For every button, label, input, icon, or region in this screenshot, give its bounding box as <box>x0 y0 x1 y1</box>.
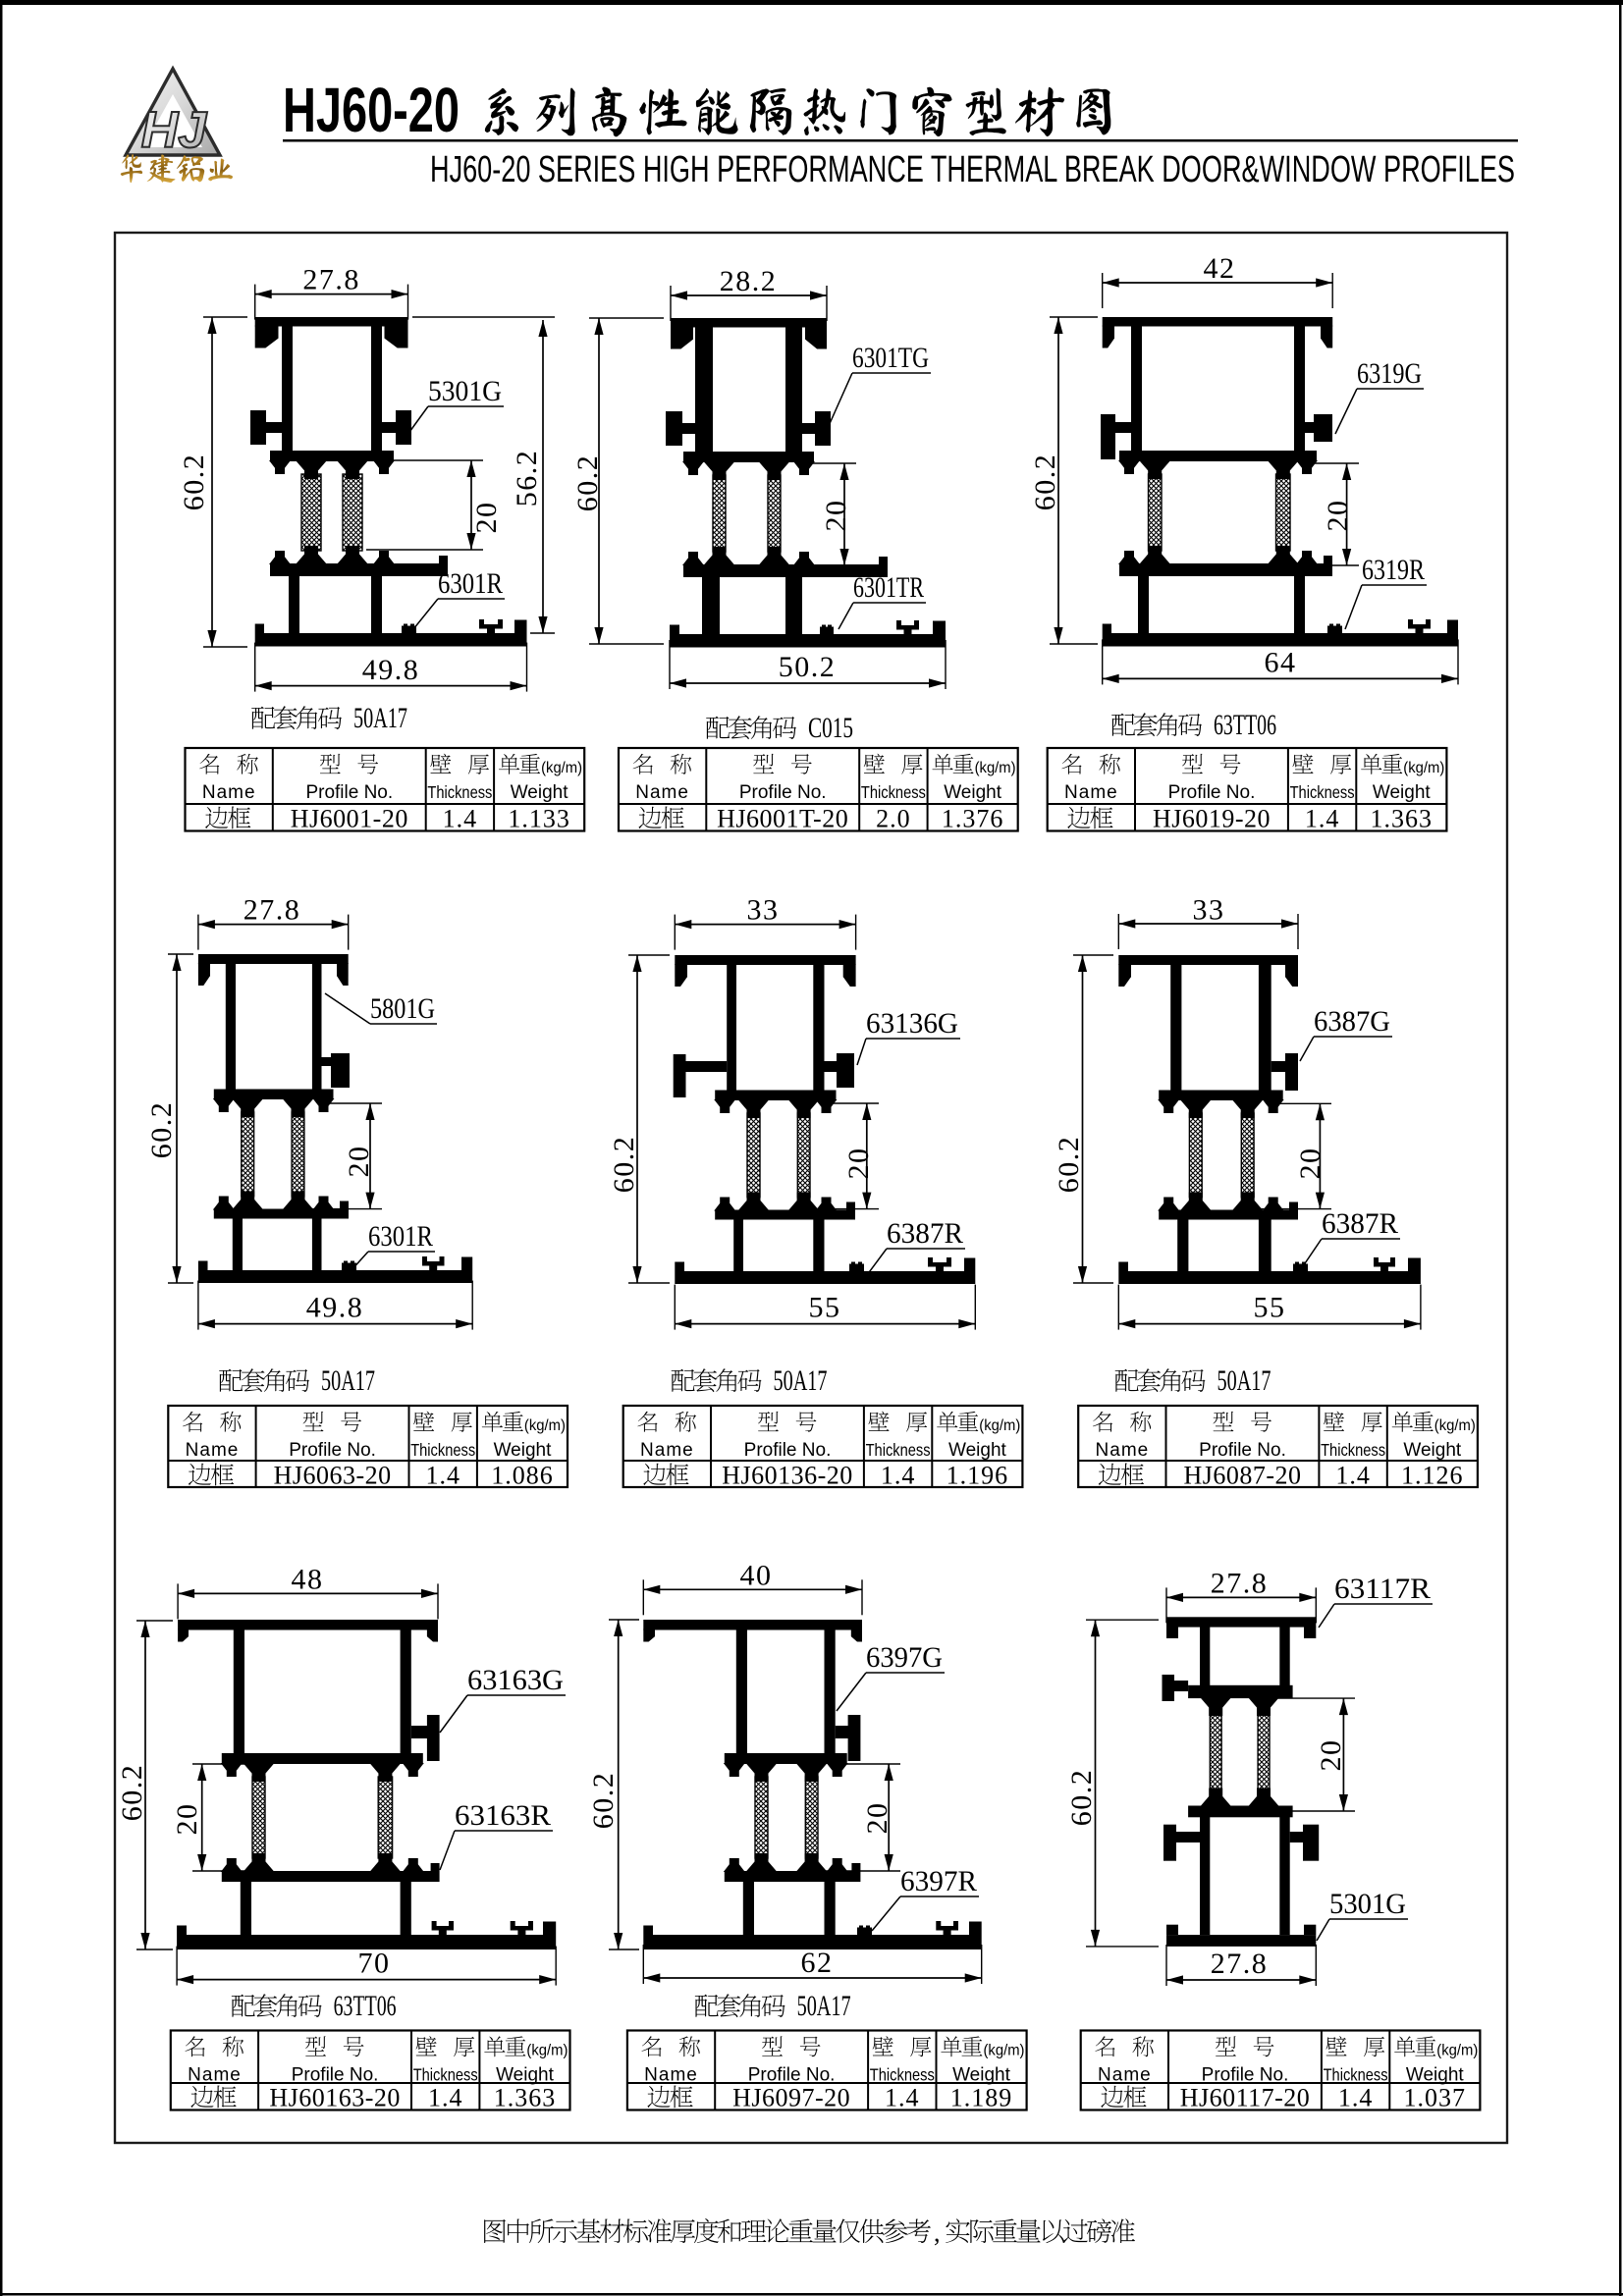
svg-text:HJ6001-20: HJ6001-20 <box>291 805 408 833</box>
svg-text:Weight: Weight <box>944 782 1002 803</box>
svg-text:Name: Name <box>1096 1440 1150 1461</box>
svg-text:50A17: 50A17 <box>774 1364 828 1397</box>
svg-text:(kg/m): (kg/m) <box>541 760 582 776</box>
svg-text:Thickness: Thickness <box>870 2065 935 2085</box>
svg-text:6301TR: 6301TR <box>853 571 924 604</box>
svg-text:55: 55 <box>1254 1292 1286 1324</box>
svg-text:Thickness: Thickness <box>1290 782 1355 802</box>
svg-text:HJ6087-20: HJ6087-20 <box>1183 1462 1301 1490</box>
svg-text:27.8: 27.8 <box>1211 1948 1269 1980</box>
svg-text:5301G: 5301G <box>428 375 502 407</box>
svg-text:20: 20 <box>861 1802 893 1835</box>
svg-text:63TT06: 63TT06 <box>334 1990 397 2022</box>
svg-text:Name: Name <box>635 782 689 803</box>
svg-text:5301G: 5301G <box>1329 1888 1406 1920</box>
svg-text:62: 62 <box>801 1947 834 1979</box>
svg-text:6387R: 6387R <box>887 1217 963 1250</box>
svg-text:1.4: 1.4 <box>428 2084 463 2112</box>
svg-text:60.2: 60.2 <box>587 1772 620 1830</box>
svg-text:1.4: 1.4 <box>1338 2084 1374 2112</box>
svg-text:1.133: 1.133 <box>508 805 570 833</box>
svg-text:C015: C015 <box>808 712 853 744</box>
svg-text:Name: Name <box>1064 782 1118 803</box>
svg-text:1.126: 1.126 <box>1401 1462 1464 1490</box>
svg-text:6301TG: 6301TG <box>852 342 929 374</box>
svg-text:Name: Name <box>186 1440 240 1461</box>
svg-text:49.8: 49.8 <box>306 1292 364 1324</box>
svg-text:Thickness: Thickness <box>866 1440 931 1460</box>
svg-text:27.8: 27.8 <box>1211 1567 1269 1599</box>
svg-text:1.037: 1.037 <box>1404 2084 1467 2112</box>
svg-text:Name: Name <box>202 782 256 803</box>
svg-text:60.2: 60.2 <box>571 454 604 512</box>
svg-text:Weight: Weight <box>948 1440 1007 1461</box>
svg-text:Weight: Weight <box>1373 782 1432 803</box>
svg-text:6387R: 6387R <box>1322 1207 1398 1240</box>
svg-text:20: 20 <box>343 1146 375 1178</box>
svg-text:70: 70 <box>358 1948 391 1980</box>
svg-text:1.4: 1.4 <box>1335 1462 1371 1490</box>
svg-text:63TT06: 63TT06 <box>1214 709 1276 741</box>
svg-text:20: 20 <box>842 1148 875 1180</box>
svg-text:27.8: 27.8 <box>243 894 301 927</box>
svg-text:Thickness: Thickness <box>1321 1440 1385 1460</box>
svg-text:20: 20 <box>820 500 852 532</box>
svg-text:1.4: 1.4 <box>443 805 478 833</box>
svg-text:20: 20 <box>1322 500 1354 532</box>
svg-text:Profile No.: Profile No. <box>744 1440 832 1461</box>
svg-text:Thickness: Thickness <box>1324 2065 1388 2085</box>
svg-text:6301R: 6301R <box>368 1220 433 1253</box>
svg-text:60.2: 60.2 <box>145 1101 178 1159</box>
svg-text:1.4: 1.4 <box>881 1462 916 1490</box>
svg-text:(kg/m): (kg/m) <box>984 2043 1025 2059</box>
svg-text:Name: Name <box>188 2065 242 2086</box>
svg-text:60.2: 60.2 <box>1029 454 1061 511</box>
svg-text:HJ6097-20: HJ6097-20 <box>732 2084 850 2112</box>
svg-text:50A17: 50A17 <box>1217 1364 1271 1397</box>
svg-text:60.2: 60.2 <box>1053 1136 1085 1194</box>
svg-text:6387G: 6387G <box>1314 1005 1390 1038</box>
svg-text:HJ60163-20: HJ60163-20 <box>269 2084 401 2112</box>
svg-text:48: 48 <box>292 1563 324 1595</box>
svg-text:64: 64 <box>1265 646 1297 678</box>
svg-text:HJ60136-20: HJ60136-20 <box>722 1462 853 1490</box>
svg-text:Profile No.: Profile No. <box>1168 782 1256 803</box>
svg-text:HJ: HJ <box>141 102 208 159</box>
svg-text:Profile No.: Profile No. <box>739 782 827 803</box>
svg-text:33: 33 <box>747 894 780 927</box>
svg-text:6301R: 6301R <box>438 567 503 600</box>
svg-text:1.189: 1.189 <box>950 2084 1013 2112</box>
svg-text:Weight: Weight <box>1406 2065 1465 2086</box>
svg-text:Profile No.: Profile No. <box>289 1440 376 1461</box>
svg-text:60.2: 60.2 <box>178 454 210 511</box>
svg-text:1.086: 1.086 <box>491 1462 554 1490</box>
svg-text:20: 20 <box>470 502 503 534</box>
svg-text:42: 42 <box>1204 252 1236 285</box>
svg-text:Profile No.: Profile No. <box>1199 1440 1286 1461</box>
svg-text:HJ60-20: HJ60-20 <box>283 75 460 145</box>
svg-text:Weight: Weight <box>1403 1440 1462 1461</box>
svg-text:6397R: 6397R <box>900 1865 977 1897</box>
svg-text:Profile No.: Profile No. <box>748 2065 836 2086</box>
svg-text:HJ6063-20: HJ6063-20 <box>274 1462 392 1490</box>
svg-text:HJ60-20 SERIES HIGH PERFORMANC: HJ60-20 SERIES HIGH PERFORMANCE THERMAL … <box>430 149 1515 190</box>
svg-text:6397G: 6397G <box>866 1641 943 1674</box>
svg-text:Weight: Weight <box>952 2065 1011 2086</box>
svg-text:56.2: 56.2 <box>511 450 543 507</box>
svg-text:,: , <box>934 2218 941 2247</box>
svg-text:Thickness: Thickness <box>861 782 926 802</box>
svg-text:HJ6001T-20: HJ6001T-20 <box>717 805 848 833</box>
svg-text:1.4: 1.4 <box>425 1462 460 1490</box>
svg-text:(kg/m): (kg/m) <box>979 1417 1020 1434</box>
svg-text:Thickness: Thickness <box>410 1440 475 1460</box>
svg-text:1.363: 1.363 <box>494 2084 557 2112</box>
svg-text:60.2: 60.2 <box>1065 1769 1098 1827</box>
svg-text:28.2: 28.2 <box>720 265 778 297</box>
svg-text:Name: Name <box>644 2065 698 2086</box>
svg-text:HJ6019-20: HJ6019-20 <box>1153 805 1271 833</box>
svg-text:60.2: 60.2 <box>116 1764 148 1822</box>
svg-text:5801G: 5801G <box>370 992 435 1025</box>
svg-text:60.2: 60.2 <box>608 1136 640 1194</box>
svg-text:(kg/m): (kg/m) <box>1436 2043 1478 2059</box>
svg-text:50A17: 50A17 <box>321 1364 375 1397</box>
svg-text:50A17: 50A17 <box>797 1990 851 2022</box>
svg-text:1.196: 1.196 <box>947 1462 1009 1490</box>
svg-text:20: 20 <box>1294 1148 1326 1180</box>
svg-text:Weight: Weight <box>511 782 569 803</box>
svg-text:(kg/m): (kg/m) <box>526 2043 568 2059</box>
svg-text:Thickness: Thickness <box>427 782 492 802</box>
svg-text:Name: Name <box>1098 2065 1152 2086</box>
svg-text:Weight: Weight <box>496 2065 555 2086</box>
svg-text:63163R: 63163R <box>455 1799 551 1832</box>
svg-text:1.376: 1.376 <box>942 805 1004 833</box>
svg-text:Profile No.: Profile No. <box>1202 2065 1289 2086</box>
svg-text:50.2: 50.2 <box>779 651 837 683</box>
svg-text:1.363: 1.363 <box>1371 805 1434 833</box>
svg-text:(kg/m): (kg/m) <box>1434 1417 1476 1434</box>
svg-text:63136G: 63136G <box>866 1007 958 1040</box>
svg-text:27.8: 27.8 <box>302 264 360 296</box>
svg-text:40: 40 <box>740 1559 773 1591</box>
svg-text:33: 33 <box>1193 894 1225 927</box>
svg-text:63163G: 63163G <box>467 1664 564 1696</box>
svg-text:Name: Name <box>640 1440 694 1461</box>
svg-text:Weight: Weight <box>494 1440 553 1461</box>
svg-text:49.8: 49.8 <box>362 654 420 686</box>
svg-text:20: 20 <box>1315 1739 1347 1772</box>
svg-text:Profile No.: Profile No. <box>305 782 393 803</box>
svg-text:20: 20 <box>171 1803 203 1836</box>
svg-text:HJ60117-20: HJ60117-20 <box>1180 2084 1311 2112</box>
svg-text:(kg/m): (kg/m) <box>1403 760 1444 776</box>
svg-text:6319R: 6319R <box>1362 554 1425 586</box>
svg-text:2.0: 2.0 <box>876 805 911 833</box>
svg-text:(kg/m): (kg/m) <box>975 760 1016 776</box>
svg-text:1.4: 1.4 <box>885 2084 920 2112</box>
svg-text:55: 55 <box>809 1292 841 1324</box>
svg-text:50A17: 50A17 <box>353 702 407 734</box>
svg-text:1.4: 1.4 <box>1305 805 1340 833</box>
svg-text:Profile No.: Profile No. <box>292 2065 379 2086</box>
svg-text:(kg/m): (kg/m) <box>524 1417 566 1434</box>
svg-text:63117R: 63117R <box>1334 1573 1431 1605</box>
svg-text:Thickness: Thickness <box>413 2065 478 2085</box>
svg-text:6319G: 6319G <box>1357 357 1422 390</box>
